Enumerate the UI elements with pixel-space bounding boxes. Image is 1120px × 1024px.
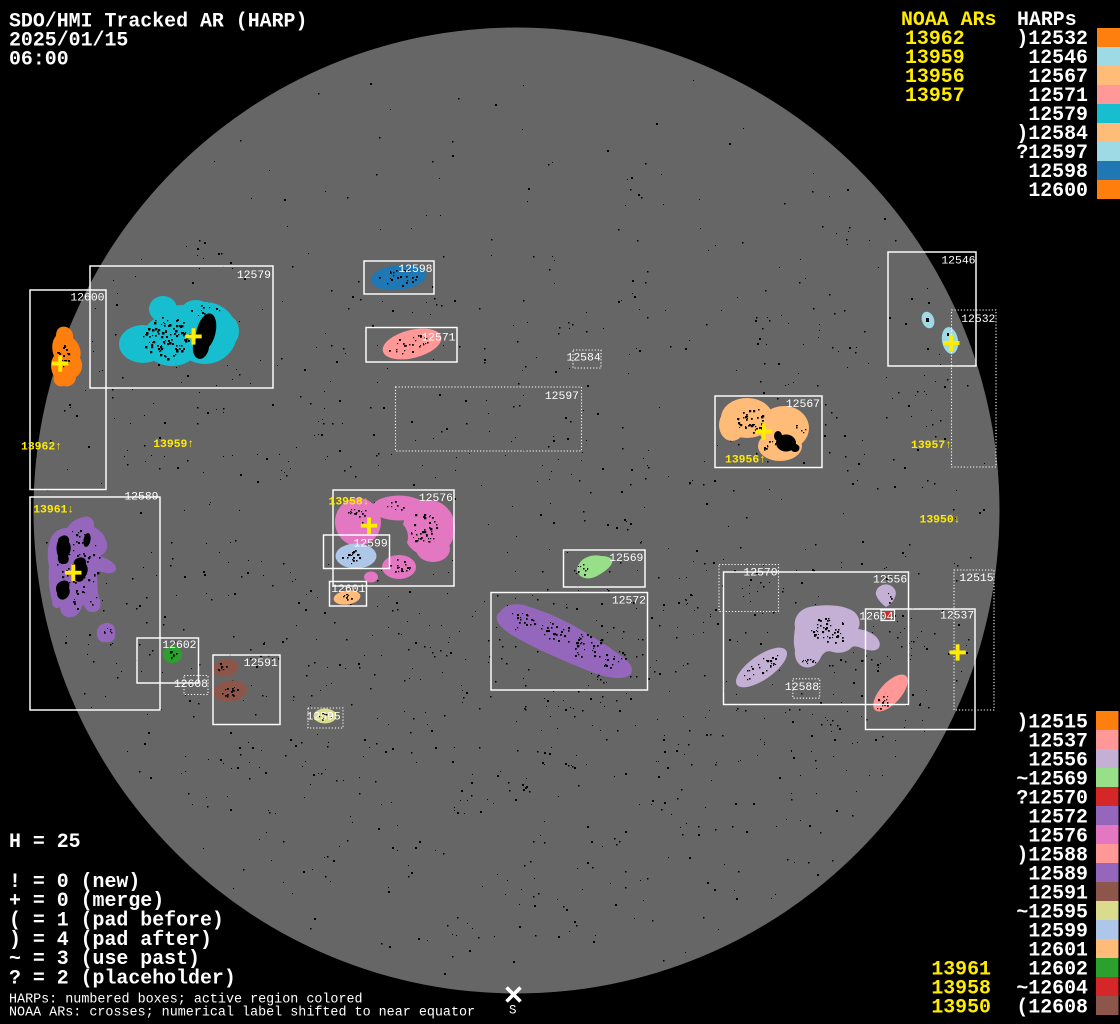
svg-text:12600: 12600 bbox=[70, 292, 104, 304]
svg-text:12546: 12546 bbox=[941, 255, 975, 267]
svg-text:12601: 12601 bbox=[331, 584, 365, 596]
svg-text:12572: 12572 bbox=[612, 596, 646, 608]
svg-text:H = 25: H = 25 bbox=[9, 830, 81, 853]
svg-text:(12608: (12608 bbox=[1016, 995, 1088, 1018]
svg-text:12599: 12599 bbox=[354, 539, 388, 551]
svg-text:12588: 12588 bbox=[785, 682, 819, 694]
svg-text:12598: 12598 bbox=[398, 264, 432, 276]
svg-text:13959↑: 13959↑ bbox=[153, 439, 194, 451]
svg-text:13950↓: 13950↓ bbox=[920, 515, 961, 527]
svg-text:12595: 12595 bbox=[307, 712, 341, 724]
svg-text:13956↑: 13956↑ bbox=[725, 455, 766, 467]
svg-text:12537: 12537 bbox=[940, 611, 974, 623]
svg-text:12579: 12579 bbox=[237, 270, 271, 282]
svg-text:06:00: 06:00 bbox=[9, 48, 69, 71]
svg-text:12569: 12569 bbox=[609, 553, 643, 565]
svg-text:12600: 12600 bbox=[1028, 179, 1088, 202]
svg-text:13957↑: 13957↑ bbox=[911, 440, 952, 452]
svg-text:12570: 12570 bbox=[743, 567, 777, 579]
svg-text:12576: 12576 bbox=[419, 493, 453, 505]
svg-text:12571: 12571 bbox=[421, 333, 455, 345]
svg-text:12515: 12515 bbox=[959, 573, 993, 585]
svg-text:12604: 12604 bbox=[859, 612, 893, 624]
svg-text:13962↑: 13962↑ bbox=[21, 442, 62, 454]
svg-text:13957: 13957 bbox=[905, 84, 965, 107]
svg-text:12589: 12589 bbox=[124, 492, 158, 504]
svg-text:13950: 13950 bbox=[931, 995, 991, 1018]
svg-text:12608: 12608 bbox=[174, 679, 208, 691]
svg-text:12584: 12584 bbox=[567, 353, 601, 365]
svg-text:NOAA ARs: crosses; numerical l: NOAA ARs: crosses; numerical label shift… bbox=[9, 1005, 475, 1020]
svg-text:12602: 12602 bbox=[162, 640, 196, 652]
svg-text:13958↓: 13958↓ bbox=[329, 497, 370, 509]
svg-text:? = 2 (placeholder): ? = 2 (placeholder) bbox=[9, 966, 236, 989]
svg-text:12597: 12597 bbox=[545, 391, 579, 403]
svg-text:12556: 12556 bbox=[873, 575, 907, 587]
svg-text:13961↓: 13961↓ bbox=[33, 504, 74, 516]
svg-text:12532: 12532 bbox=[961, 314, 995, 326]
svg-text:12591: 12591 bbox=[244, 658, 278, 670]
svg-text:12567: 12567 bbox=[786, 399, 820, 411]
svg-text:S: S bbox=[509, 1004, 517, 1018]
